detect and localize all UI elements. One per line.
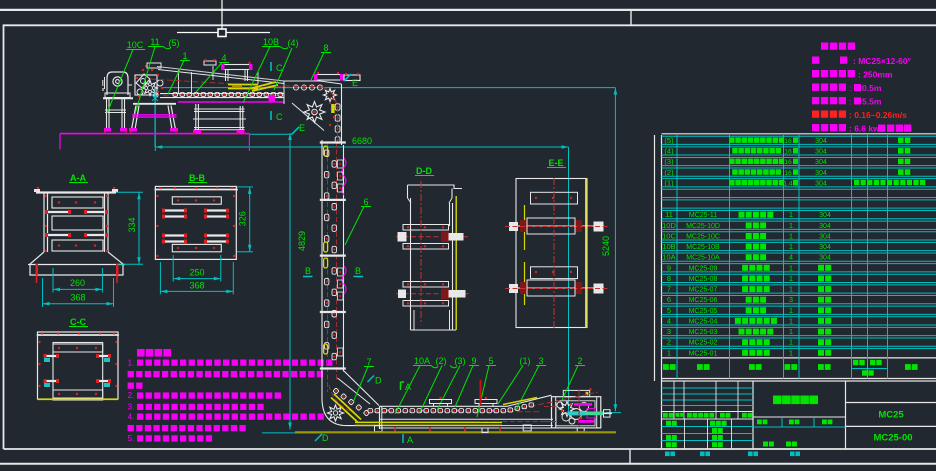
- svg-text:2.: 2.: [128, 391, 135, 400]
- svg-text:368: 368: [189, 281, 204, 291]
- svg-text:304: 304: [815, 138, 827, 145]
- svg-text:368: 368: [70, 293, 85, 303]
- svg-text:4: 4: [667, 316, 671, 325]
- svg-text:16: 16: [784, 149, 792, 156]
- svg-text:2: 2: [667, 338, 671, 347]
- svg-text:5.5m: 5.5m: [862, 97, 882, 107]
- svg-text:250: 250: [189, 268, 204, 278]
- svg-text:3: 3: [538, 356, 543, 366]
- svg-text:5: 5: [667, 306, 671, 315]
- svg-text:3: 3: [789, 295, 793, 304]
- svg-text:MC25-10B: MC25-10B: [686, 244, 720, 251]
- svg-text:(3): (3): [664, 157, 674, 166]
- svg-text:6: 6: [363, 197, 368, 207]
- svg-text:3.: 3.: [128, 403, 135, 412]
- svg-text:11: 11: [150, 37, 159, 47]
- svg-text:MC25-08: MC25-08: [689, 276, 718, 283]
- svg-text:E: E: [299, 123, 305, 133]
- svg-text:1.4: 1.4: [783, 180, 793, 187]
- svg-text:MC25-00: MC25-00: [873, 433, 912, 444]
- svg-text:5: 5: [488, 356, 493, 366]
- svg-text:2: 2: [577, 356, 582, 366]
- svg-text:MC25-11: MC25-11: [689, 212, 717, 219]
- svg-text:MC25-10C: MC25-10C: [686, 233, 720, 240]
- svg-text:1: 1: [789, 274, 793, 283]
- svg-text:MC25: MC25: [878, 410, 904, 421]
- svg-text:1: 1: [667, 348, 671, 357]
- svg-text:0.5m: 0.5m: [862, 83, 882, 93]
- svg-text:6680: 6680: [352, 136, 372, 146]
- svg-text:3: 3: [667, 327, 671, 336]
- svg-text:B: B: [305, 266, 311, 276]
- svg-text:(5): (5): [664, 136, 674, 145]
- svg-text:260: 260: [70, 278, 85, 288]
- svg-text:MC25-10D: MC25-10D: [686, 223, 720, 230]
- svg-text:7: 7: [667, 285, 671, 294]
- svg-text:A: A: [407, 435, 413, 445]
- svg-text:MC25-06: MC25-06: [689, 297, 718, 304]
- svg-text:: 250mm: : 250mm: [858, 70, 893, 80]
- svg-text:334: 334: [127, 217, 137, 232]
- svg-text:A-A: A-A: [70, 173, 86, 183]
- svg-text:326: 326: [238, 211, 248, 226]
- svg-text:9: 9: [471, 356, 476, 366]
- svg-text:304: 304: [815, 159, 827, 166]
- svg-text:MC25-05: MC25-05: [689, 308, 718, 315]
- svg-text:16: 16: [784, 159, 792, 166]
- svg-text:304: 304: [819, 255, 831, 262]
- svg-text:: 0.16~0.26m/s: : 0.16~0.26m/s: [849, 110, 907, 120]
- svg-text:(2): (2): [664, 168, 674, 177]
- svg-text:1: 1: [182, 51, 187, 61]
- svg-text:5240: 5240: [601, 236, 611, 256]
- svg-text:: MC25×12-60°: : MC25×12-60°: [853, 56, 912, 66]
- svg-text:8: 8: [323, 43, 328, 53]
- svg-text:10D: 10D: [662, 221, 676, 230]
- svg-text:1: 1: [789, 263, 793, 272]
- svg-text:4829: 4829: [297, 231, 307, 251]
- svg-text:9: 9: [667, 263, 671, 272]
- svg-text:(3): (3): [455, 356, 466, 366]
- svg-text:304: 304: [815, 170, 827, 177]
- svg-text:(2): (2): [436, 356, 447, 366]
- svg-text:304: 304: [815, 180, 827, 187]
- svg-text:A: A: [405, 382, 411, 392]
- svg-text:(4): (4): [664, 147, 674, 156]
- svg-text:E-E: E-E: [548, 158, 563, 168]
- svg-text:10A: 10A: [662, 253, 675, 262]
- svg-text:16: 16: [784, 138, 792, 145]
- svg-text:7: 7: [366, 357, 371, 367]
- svg-text:(1): (1): [664, 178, 674, 187]
- svg-text:16: 16: [784, 170, 792, 177]
- svg-text:: 6.6 kw: : 6.6 kw: [849, 124, 880, 134]
- svg-text:1: 1: [789, 231, 793, 240]
- svg-text:(4): (4): [288, 38, 299, 48]
- svg-text:10B: 10B: [662, 242, 675, 251]
- svg-text:B: B: [355, 266, 361, 276]
- svg-text:1: 1: [789, 327, 793, 336]
- svg-text:6: 6: [667, 295, 671, 304]
- svg-text:10B: 10B: [263, 37, 279, 47]
- svg-text:5.: 5.: [128, 434, 135, 443]
- svg-text:1: 1: [789, 306, 793, 315]
- svg-text:MC25-10A: MC25-10A: [686, 255, 720, 262]
- svg-text:10C: 10C: [662, 231, 676, 240]
- svg-text:MC25-01: MC25-01: [689, 350, 718, 357]
- svg-text:1: 1: [789, 242, 793, 251]
- svg-text:304: 304: [819, 223, 831, 230]
- svg-text:304: 304: [819, 212, 831, 219]
- svg-text:(5): (5): [169, 38, 180, 48]
- svg-text:C: C: [276, 112, 283, 122]
- svg-text:304: 304: [819, 233, 831, 240]
- svg-text:1: 1: [789, 285, 793, 294]
- svg-text:MC25-09: MC25-09: [689, 265, 718, 272]
- svg-text:D: D: [322, 433, 329, 443]
- svg-text:D-D: D-D: [416, 166, 432, 176]
- svg-text:D: D: [375, 376, 382, 386]
- svg-text:1: 1: [789, 338, 793, 347]
- svg-text:E: E: [352, 78, 358, 88]
- svg-text:1: 1: [789, 210, 793, 219]
- svg-text:C-C: C-C: [70, 317, 86, 327]
- svg-text:MC25-02: MC25-02: [689, 340, 718, 347]
- svg-text:MC25-07: MC25-07: [689, 287, 718, 294]
- svg-text:MC25-04: MC25-04: [689, 318, 718, 325]
- svg-text:MC25-03: MC25-03: [689, 329, 718, 336]
- svg-text:B-B: B-B: [189, 173, 205, 183]
- svg-text:4.: 4.: [128, 412, 135, 421]
- svg-text:8: 8: [667, 274, 671, 283]
- svg-text:(1): (1): [520, 356, 531, 366]
- svg-text:11: 11: [665, 210, 673, 219]
- svg-text::: :: [849, 97, 851, 107]
- svg-text:304: 304: [815, 149, 827, 156]
- svg-text::: :: [849, 83, 851, 93]
- svg-text:10A: 10A: [414, 356, 430, 366]
- svg-text:1: 1: [789, 316, 793, 325]
- svg-text:4: 4: [221, 53, 226, 63]
- svg-text:1: 1: [789, 221, 793, 230]
- svg-text:4: 4: [789, 253, 793, 262]
- svg-text:10C: 10C: [127, 40, 144, 50]
- svg-text:1.: 1.: [128, 358, 135, 367]
- svg-text:304: 304: [819, 244, 831, 251]
- svg-text:1: 1: [789, 348, 793, 357]
